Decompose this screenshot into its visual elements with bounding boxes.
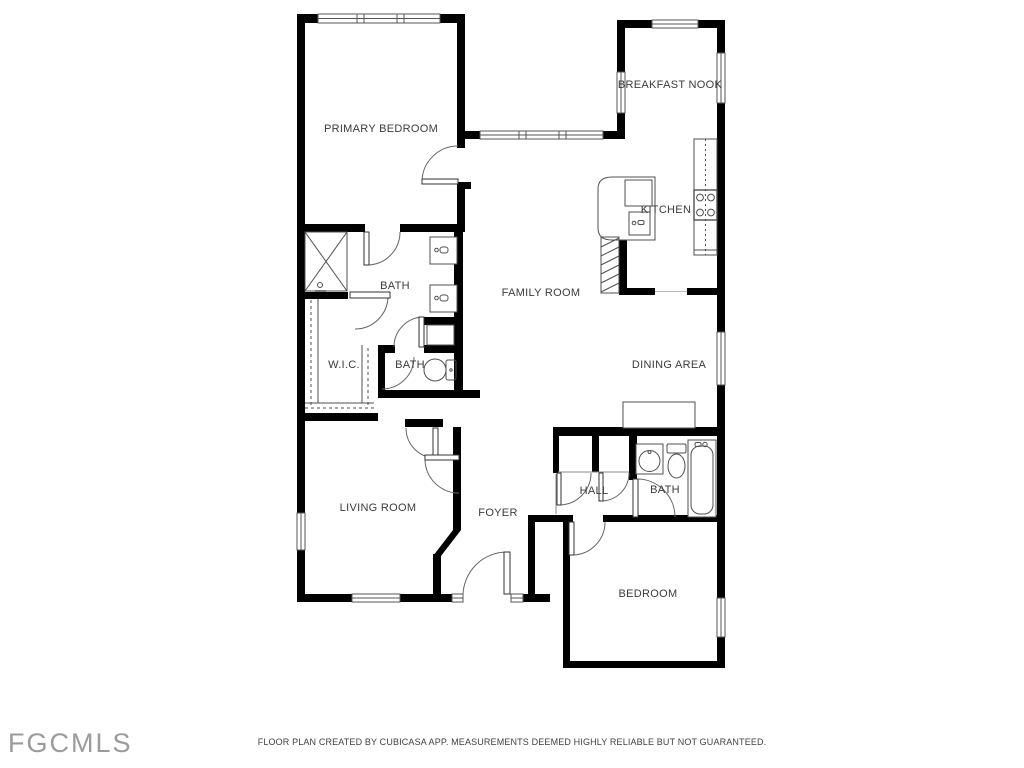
room-label-wic: W.I.C. [328, 359, 360, 371]
window-entry-sidelight-right [511, 594, 523, 602]
window-breakfast-nook-right [717, 53, 725, 103]
counter-icon [694, 139, 717, 255]
walls [297, 14, 725, 668]
door-bath-vestibule [394, 317, 424, 347]
room-label-living-room: LIVING ROOM [340, 502, 417, 514]
linen-niche [427, 325, 454, 345]
closet-shelves-icon [305, 299, 374, 408]
window-breakfast-nook-top [652, 20, 698, 28]
bathtub-icon [688, 440, 716, 517]
window-bedroom-right [717, 598, 725, 637]
room-label-primary-bedroom: PRIMARY BEDROOM [324, 123, 438, 135]
window-entry-sidelight-left [452, 594, 463, 602]
dining-cabinet-icon [623, 402, 695, 428]
door-ensuite-bath [364, 232, 400, 265]
room-label-foyer: FOYER [478, 507, 517, 519]
room-label-bath-ensuite: BATH [380, 280, 410, 292]
fixtures [305, 139, 717, 517]
shower-icon [305, 232, 347, 291]
window-living-left [297, 513, 305, 550]
refrigerator-icon [625, 180, 652, 206]
room-label-dining-area: DINING AREA [632, 359, 706, 371]
footer-disclaimer: FLOOR PLAN CREATED BY CUBICASA APP. MEAS… [0, 737, 1024, 747]
room-label-breakfast-nook: BREAKFAST NOOK [618, 79, 722, 91]
room-label-kitchen: KITCHEN [641, 204, 691, 216]
door-wic [350, 292, 390, 329]
door-living-room-1 [406, 428, 438, 458]
toilet-icon [424, 359, 456, 381]
vanity-sink-icon [430, 285, 457, 312]
window-family-room-top [480, 131, 603, 139]
door-entry [463, 552, 510, 596]
door-primary-bedroom [422, 146, 458, 184]
room-label-family-room: FAMILY ROOM [502, 287, 581, 299]
toilet-icon [667, 444, 686, 478]
room-label-hall: HALL [580, 485, 609, 497]
stairs-icon [601, 237, 619, 293]
door-bedroom [569, 522, 605, 555]
vanity-sink-icon [430, 237, 457, 264]
room-label-bath-hall: BATH [650, 484, 680, 496]
window-primary-bedroom-top [318, 14, 440, 23]
room-label-bedroom: BEDROOM [619, 588, 678, 600]
bathroom-sink-icon [636, 444, 663, 474]
window-dining-right [717, 332, 725, 385]
window-living-bottom [352, 594, 400, 602]
room-label-bath-middle: BATH [395, 359, 425, 371]
floor-plan-drawing [0, 0, 1024, 768]
windows [297, 14, 725, 637]
